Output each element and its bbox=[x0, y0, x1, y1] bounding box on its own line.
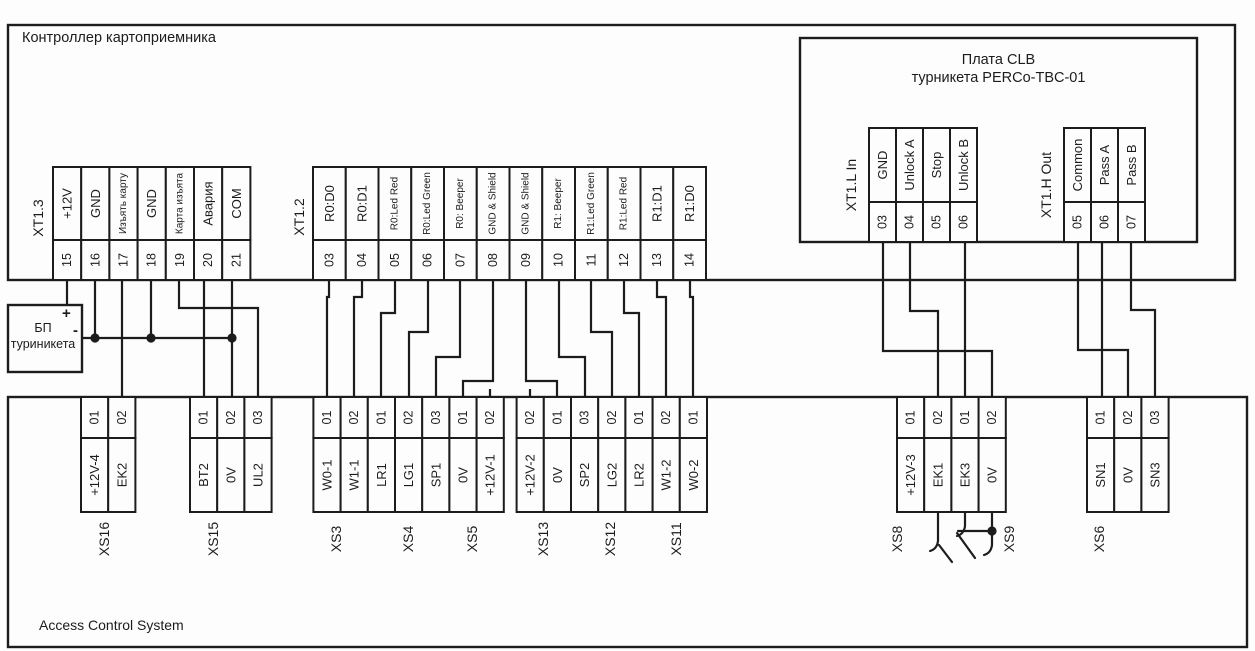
terminal-number: 03 bbox=[578, 411, 592, 425]
terminal-number: 02 bbox=[985, 411, 999, 425]
terminal-number: 01 bbox=[904, 411, 918, 425]
terminal-label: R1: Beeper bbox=[553, 178, 564, 229]
w-passb-to-sn3 bbox=[1131, 242, 1155, 397]
terminal-label: Unlock A bbox=[902, 139, 917, 191]
terminal-label: 0V bbox=[223, 467, 238, 483]
terminal-label: GND & Shield bbox=[488, 172, 499, 234]
terminal-number: 15 bbox=[60, 253, 74, 267]
terminal-number: 03 bbox=[429, 411, 443, 425]
terminal-label: GND bbox=[144, 189, 159, 218]
terminal-block-XS11: W1-202W0-201XS11 bbox=[653, 397, 707, 556]
w-r1green-to-lg2 bbox=[591, 280, 612, 397]
terminal-block-XS8: +12V-301EK102XS8 bbox=[889, 397, 951, 552]
terminal-number: 02 bbox=[402, 411, 416, 425]
terminal-label: UL2 bbox=[251, 463, 266, 487]
w-gnd08-to-0v bbox=[463, 280, 493, 397]
junction-psu-gnd18 bbox=[146, 333, 155, 342]
block-name: XS12 bbox=[602, 522, 618, 556]
terminal-number: 19 bbox=[173, 253, 187, 267]
terminal-number: 04 bbox=[903, 215, 917, 229]
terminal-label: W1-2 bbox=[659, 459, 674, 490]
terminal-number: 01 bbox=[958, 411, 972, 425]
terminal-label: 0V bbox=[1120, 467, 1135, 483]
terminal-block-XT1.L: GND03Unlock A04Stop05Unlock B06XT1.L In bbox=[843, 128, 977, 242]
schematic-canvas: +12V15GND16Изъять карту17GND18Карта изъя… bbox=[0, 0, 1255, 651]
terminal-block-XS13: +12V-2020V01XS13 bbox=[517, 397, 571, 556]
terminal-number: 01 bbox=[632, 411, 646, 425]
terminal-number: 03 bbox=[1148, 411, 1162, 425]
switch-ek1-blade bbox=[939, 545, 952, 562]
w-r1red-to-lr2 bbox=[624, 280, 639, 397]
terminal-number: 06 bbox=[1098, 215, 1112, 229]
block-name: XS6 bbox=[1091, 526, 1107, 553]
terminal-block-XS4: LR101LG102SP103XS4 bbox=[368, 397, 450, 552]
terminal-label: 0V bbox=[456, 467, 471, 483]
block-name: XS16 bbox=[96, 522, 112, 556]
terminal-label: Unlock B bbox=[956, 139, 971, 191]
terminal-label: R0:Led Red bbox=[389, 177, 400, 230]
terminal-number: 01 bbox=[550, 411, 564, 425]
block-name: XS13 bbox=[535, 522, 551, 556]
terminal-number: 02 bbox=[347, 411, 361, 425]
block-name: XS3 bbox=[328, 526, 344, 553]
terminal-label: Pass A bbox=[1097, 144, 1112, 185]
block-name: XS5 bbox=[464, 526, 480, 553]
terminal-label: +12V-1 bbox=[483, 454, 498, 496]
terminal-label: R1:D0 bbox=[682, 185, 697, 222]
terminal-label: LR2 bbox=[632, 463, 647, 487]
terminal-label: 0V bbox=[550, 467, 565, 483]
terminal-number: 02 bbox=[1121, 411, 1135, 425]
terminal-number: 07 bbox=[453, 253, 467, 267]
switch-ek3-blade bbox=[957, 533, 975, 558]
w-r0d1-to-w11 bbox=[354, 280, 362, 397]
terminal-number: 07 bbox=[1125, 215, 1139, 229]
terminal-label: LR1 bbox=[374, 463, 389, 487]
terminal-label: W0-1 bbox=[320, 459, 335, 490]
terminal-number: 01 bbox=[1094, 411, 1108, 425]
terminal-label: R0:Led Green bbox=[422, 172, 433, 235]
terminal-number: 01 bbox=[197, 411, 211, 425]
terminal-number: 01 bbox=[374, 411, 388, 425]
terminal-number: 03 bbox=[251, 411, 265, 425]
terminal-number: 02 bbox=[605, 411, 619, 425]
terminal-label: R1:Led Red bbox=[619, 177, 630, 230]
block-name: XS8 bbox=[889, 526, 905, 553]
terminal-label: Stop bbox=[929, 152, 944, 179]
terminal-block-XS16: +12V-401EK202XS16 bbox=[81, 397, 135, 556]
terminal-number: 13 bbox=[650, 253, 664, 267]
w-unlocka-to-ek1 bbox=[910, 242, 938, 397]
terminal-number: 02 bbox=[523, 411, 537, 425]
block-name: XT1.L In bbox=[843, 159, 859, 211]
terminal-number: 12 bbox=[617, 253, 631, 267]
w-r1d0-to-w02 bbox=[690, 280, 693, 397]
block-name: XT1.H Out bbox=[1038, 152, 1054, 218]
switch-ek1-wire bbox=[930, 512, 938, 551]
junction-psu-gnd16 bbox=[90, 333, 99, 342]
terminal-label: R0:D1 bbox=[355, 185, 370, 222]
terminal-number: 10 bbox=[552, 253, 566, 267]
terminal-label: Карта изъята bbox=[174, 172, 185, 234]
terminal-number: 11 bbox=[584, 253, 598, 266]
terminal-number: 02 bbox=[659, 411, 673, 425]
terminal-block-XT1.2: R0:D003R0:D104R0:Led Red05R0:Led Green06… bbox=[291, 167, 706, 280]
block-name: XS9 bbox=[1001, 526, 1017, 553]
block-name: XS11 bbox=[668, 522, 684, 555]
terminal-label: SN3 bbox=[1148, 462, 1163, 487]
terminal-number: 05 bbox=[1071, 215, 1085, 229]
junction-psu-com bbox=[227, 333, 236, 342]
terminal-label: SN1 bbox=[1093, 462, 1108, 487]
terminal-label: Pass B bbox=[1124, 144, 1139, 185]
terminal-number: 05 bbox=[388, 253, 402, 267]
terminal-number: 01 bbox=[88, 411, 102, 425]
terminal-block-XT1.H: Common05Pass A06Pass B07XT1.H Out bbox=[1038, 128, 1145, 242]
terminal-block-XT1.3: +12V15GND16Изъять карту17GND18Карта изъя… bbox=[30, 167, 250, 280]
block-name: XT1.3 bbox=[30, 199, 46, 237]
block-name: XS15 bbox=[205, 522, 221, 556]
terminal-number: 04 bbox=[355, 253, 369, 267]
terminal-label: BT2 bbox=[196, 463, 211, 487]
terminal-label: GND bbox=[88, 189, 103, 218]
terminal-number: 05 bbox=[930, 215, 944, 229]
w-r0d0-to-w01 bbox=[327, 280, 329, 397]
psu-box bbox=[8, 305, 82, 372]
terminal-label: +12V-3 bbox=[903, 454, 918, 496]
terminal-block-XS5: 0V01+12V-102XS5 bbox=[449, 397, 503, 552]
block-name: XS4 bbox=[400, 526, 416, 553]
terminal-label: Common bbox=[1070, 139, 1085, 192]
terminal-label: LG1 bbox=[401, 463, 416, 488]
terminal-number: 02 bbox=[483, 411, 497, 425]
terminal-label: 0V bbox=[985, 467, 1000, 483]
terminal-label: SP2 bbox=[577, 463, 592, 488]
terminal-number: 20 bbox=[201, 253, 215, 267]
terminal-number: 06 bbox=[957, 215, 971, 229]
terminal-number: 02 bbox=[224, 411, 238, 425]
terminal-label: W1-1 bbox=[347, 459, 362, 490]
terminal-label: COM bbox=[229, 188, 244, 218]
w-r0green-to-lg1 bbox=[409, 280, 428, 397]
terminal-label: EK2 bbox=[114, 463, 129, 488]
terminal-label: +12V-2 bbox=[523, 454, 538, 496]
w-r1d1-to-w12 bbox=[657, 280, 666, 397]
terminal-label: +12V bbox=[60, 188, 75, 219]
w-gnd09-to-0v bbox=[526, 280, 557, 397]
terminal-number: 03 bbox=[876, 215, 890, 229]
terminal-block-XS9: EK3010V02XS9 bbox=[951, 397, 1017, 552]
wiring-diagram: +12V15GND16Изъять карту17GND18Карта изъя… bbox=[0, 0, 1255, 651]
terminal-number: 01 bbox=[456, 411, 470, 425]
w-r0beeper-to-sp1 bbox=[436, 280, 460, 397]
terminal-block-XS3: W0-101W1-102XS3 bbox=[313, 397, 367, 552]
terminal-label: LG2 bbox=[604, 463, 619, 488]
terminal-number: 14 bbox=[683, 253, 697, 267]
terminal-block-XS12: SP203LG202LR201XS12 bbox=[571, 397, 653, 556]
switch-ek3-wire bbox=[957, 512, 965, 536]
w-r1beeper-to-sp2 bbox=[559, 280, 585, 397]
terminal-label: Изъять карту bbox=[118, 173, 129, 234]
terminal-number: 09 bbox=[519, 253, 533, 267]
terminal-block-XS6: SN1010V02SN303XS6 bbox=[1087, 397, 1169, 552]
terminal-number: 08 bbox=[486, 253, 500, 267]
terminal-number: 01 bbox=[686, 411, 700, 425]
terminal-number: 18 bbox=[145, 253, 159, 267]
terminal-label: +12V-4 bbox=[87, 454, 102, 496]
terminal-label: R0: Beeper bbox=[455, 178, 466, 229]
terminal-label: SP1 bbox=[428, 463, 443, 488]
terminal-label: Авария bbox=[201, 181, 216, 225]
terminal-label: R0:D0 bbox=[322, 185, 337, 222]
terminal-label: EK3 bbox=[958, 463, 973, 488]
terminal-number: 06 bbox=[421, 253, 435, 267]
terminal-number: 02 bbox=[115, 411, 129, 425]
terminal-number: 21 bbox=[229, 253, 243, 267]
terminal-number: 16 bbox=[88, 253, 102, 267]
terminal-number: 02 bbox=[931, 411, 945, 425]
terminal-number: 17 bbox=[117, 253, 131, 267]
terminal-number: 01 bbox=[320, 411, 334, 425]
terminal-block-XS15: BT2010V02UL203XS15 bbox=[190, 397, 272, 556]
terminal-label: R1:Led Green bbox=[586, 172, 597, 235]
terminal-label: GND bbox=[875, 151, 890, 180]
terminal-label: R1:D1 bbox=[649, 185, 664, 222]
w-r0red-to-lr1 bbox=[381, 280, 395, 397]
terminal-label: EK1 bbox=[930, 463, 945, 488]
terminal-number: 03 bbox=[322, 253, 336, 267]
terminal-label: W0-2 bbox=[686, 459, 701, 490]
block-name: XT1.2 bbox=[291, 198, 307, 236]
terminal-label: GND & Shield bbox=[520, 172, 531, 234]
